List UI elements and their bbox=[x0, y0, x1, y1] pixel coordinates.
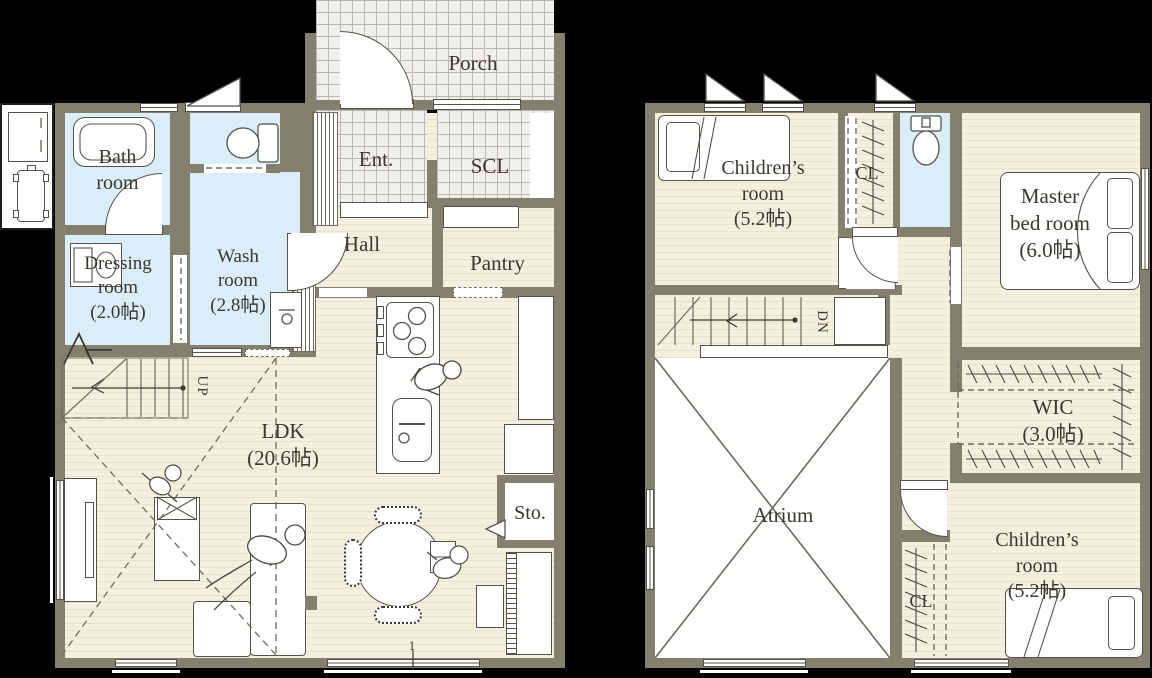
children-south-door-leaf bbox=[900, 480, 948, 490]
sofa-chaise bbox=[250, 503, 306, 656]
wall bbox=[266, 164, 280, 173]
window-sill bbox=[704, 103, 746, 112]
window bbox=[703, 659, 806, 667]
window bbox=[646, 546, 654, 590]
toilet2f-door-leaf bbox=[852, 227, 898, 237]
label-ent: Ent. bbox=[336, 146, 416, 173]
piano-keys-icon bbox=[507, 553, 517, 654]
entrance-step bbox=[340, 202, 428, 218]
stove-side-rack bbox=[377, 324, 384, 337]
wall bbox=[190, 164, 204, 173]
label-children-south: Children’s room (5.2帖) bbox=[964, 528, 1110, 605]
wall bbox=[554, 100, 565, 668]
pantry-shelf bbox=[443, 206, 519, 228]
stair-landing bbox=[700, 345, 888, 358]
sliding-window bbox=[245, 349, 290, 357]
window bbox=[115, 659, 177, 667]
stove-icon bbox=[386, 302, 434, 358]
dining-chair-icon bbox=[344, 539, 362, 587]
window-sill bbox=[874, 103, 916, 112]
scl-shoe-shelf bbox=[530, 113, 554, 198]
label-dn: DN bbox=[809, 302, 831, 342]
window bbox=[140, 103, 178, 112]
entrance-storage-louver bbox=[312, 112, 338, 226]
window-outer-sill bbox=[911, 670, 1011, 673]
wall bbox=[950, 360, 962, 392]
label-ldk: LDK (20.6帖) bbox=[228, 418, 338, 472]
window bbox=[914, 659, 1009, 667]
window bbox=[1141, 168, 1149, 270]
sliding-door-toilet1f bbox=[204, 164, 266, 173]
sliding-door-washroom bbox=[173, 255, 187, 343]
pantry-opening bbox=[453, 287, 503, 298]
wall bbox=[280, 110, 300, 172]
window-outer-sill bbox=[50, 477, 53, 603]
label-wic: WIC (3.0帖) bbox=[990, 394, 1116, 448]
pillow-icon bbox=[1108, 596, 1135, 650]
sliding-door-master bbox=[951, 247, 961, 304]
wall bbox=[890, 358, 902, 658]
wall bbox=[497, 475, 565, 483]
sofa-seat bbox=[193, 601, 251, 657]
tank-foot-icon bbox=[43, 210, 49, 218]
wall bbox=[950, 473, 1150, 483]
piano-bench bbox=[476, 585, 504, 628]
water-tank-icon bbox=[17, 170, 45, 222]
label-porch: Porch bbox=[428, 50, 518, 77]
wall bbox=[497, 540, 565, 548]
kitchen-sink-icon bbox=[392, 398, 432, 462]
table-item bbox=[430, 541, 456, 573]
kitchen-counter bbox=[518, 296, 554, 420]
label-scl: SCL bbox=[450, 153, 530, 180]
label-atrium: Atrium bbox=[738, 502, 828, 529]
dining-chair-icon bbox=[374, 506, 422, 524]
wall bbox=[554, 33, 565, 110]
label-cl-north: CL bbox=[850, 162, 884, 185]
floor-plan-canvas: Porch Ent. SCL Hall Pantry Bath room Dre… bbox=[0, 0, 1152, 678]
window-sill bbox=[185, 102, 241, 112]
tank-foot-icon bbox=[13, 210, 19, 218]
label-cl-south: CL bbox=[903, 590, 939, 613]
label-children-north: Children’s room (5.2帖) bbox=[690, 156, 836, 233]
tank-cap-icon bbox=[27, 165, 36, 171]
refrigerator-icon bbox=[504, 424, 554, 474]
dining-chair-icon bbox=[374, 606, 422, 624]
label-dressing: Dressing room (2.0帖) bbox=[61, 252, 175, 325]
side-table bbox=[305, 596, 317, 610]
tank-foot-icon bbox=[13, 174, 19, 182]
hall-opening bbox=[319, 288, 367, 297]
wall bbox=[952, 347, 1150, 360]
window-sill bbox=[762, 103, 804, 112]
wall bbox=[893, 113, 900, 227]
wall bbox=[432, 204, 443, 298]
window-outer-sill bbox=[700, 670, 808, 673]
stove-side-rack bbox=[377, 306, 384, 319]
label-master: Master bed room (6.0帖) bbox=[975, 183, 1125, 264]
label-up: UP bbox=[189, 366, 211, 406]
window-outer-sill bbox=[112, 670, 180, 673]
label-pantry: Pantry bbox=[450, 250, 545, 277]
label-hall: Hall bbox=[322, 231, 402, 258]
wall bbox=[305, 33, 316, 110]
window bbox=[56, 480, 64, 600]
label-wash: Wash room (2.8帖) bbox=[186, 245, 290, 318]
stair-upper-landing bbox=[834, 297, 886, 345]
wall bbox=[950, 113, 962, 360]
heatpump-unit-icon bbox=[8, 112, 48, 162]
window bbox=[646, 489, 654, 529]
room-toilet-2f bbox=[900, 113, 950, 227]
window-outer-sill bbox=[324, 670, 482, 673]
label-bath: Bath room bbox=[75, 145, 160, 196]
window bbox=[192, 348, 242, 357]
porch-step bbox=[433, 99, 521, 110]
window bbox=[327, 659, 480, 667]
label-marker-1: 1 bbox=[404, 638, 420, 655]
label-sto: Sto. bbox=[504, 501, 556, 527]
stove-side-rack bbox=[377, 342, 384, 355]
tv-icon bbox=[85, 502, 94, 578]
tank-foot-icon bbox=[43, 174, 49, 182]
play-table bbox=[157, 497, 197, 520]
